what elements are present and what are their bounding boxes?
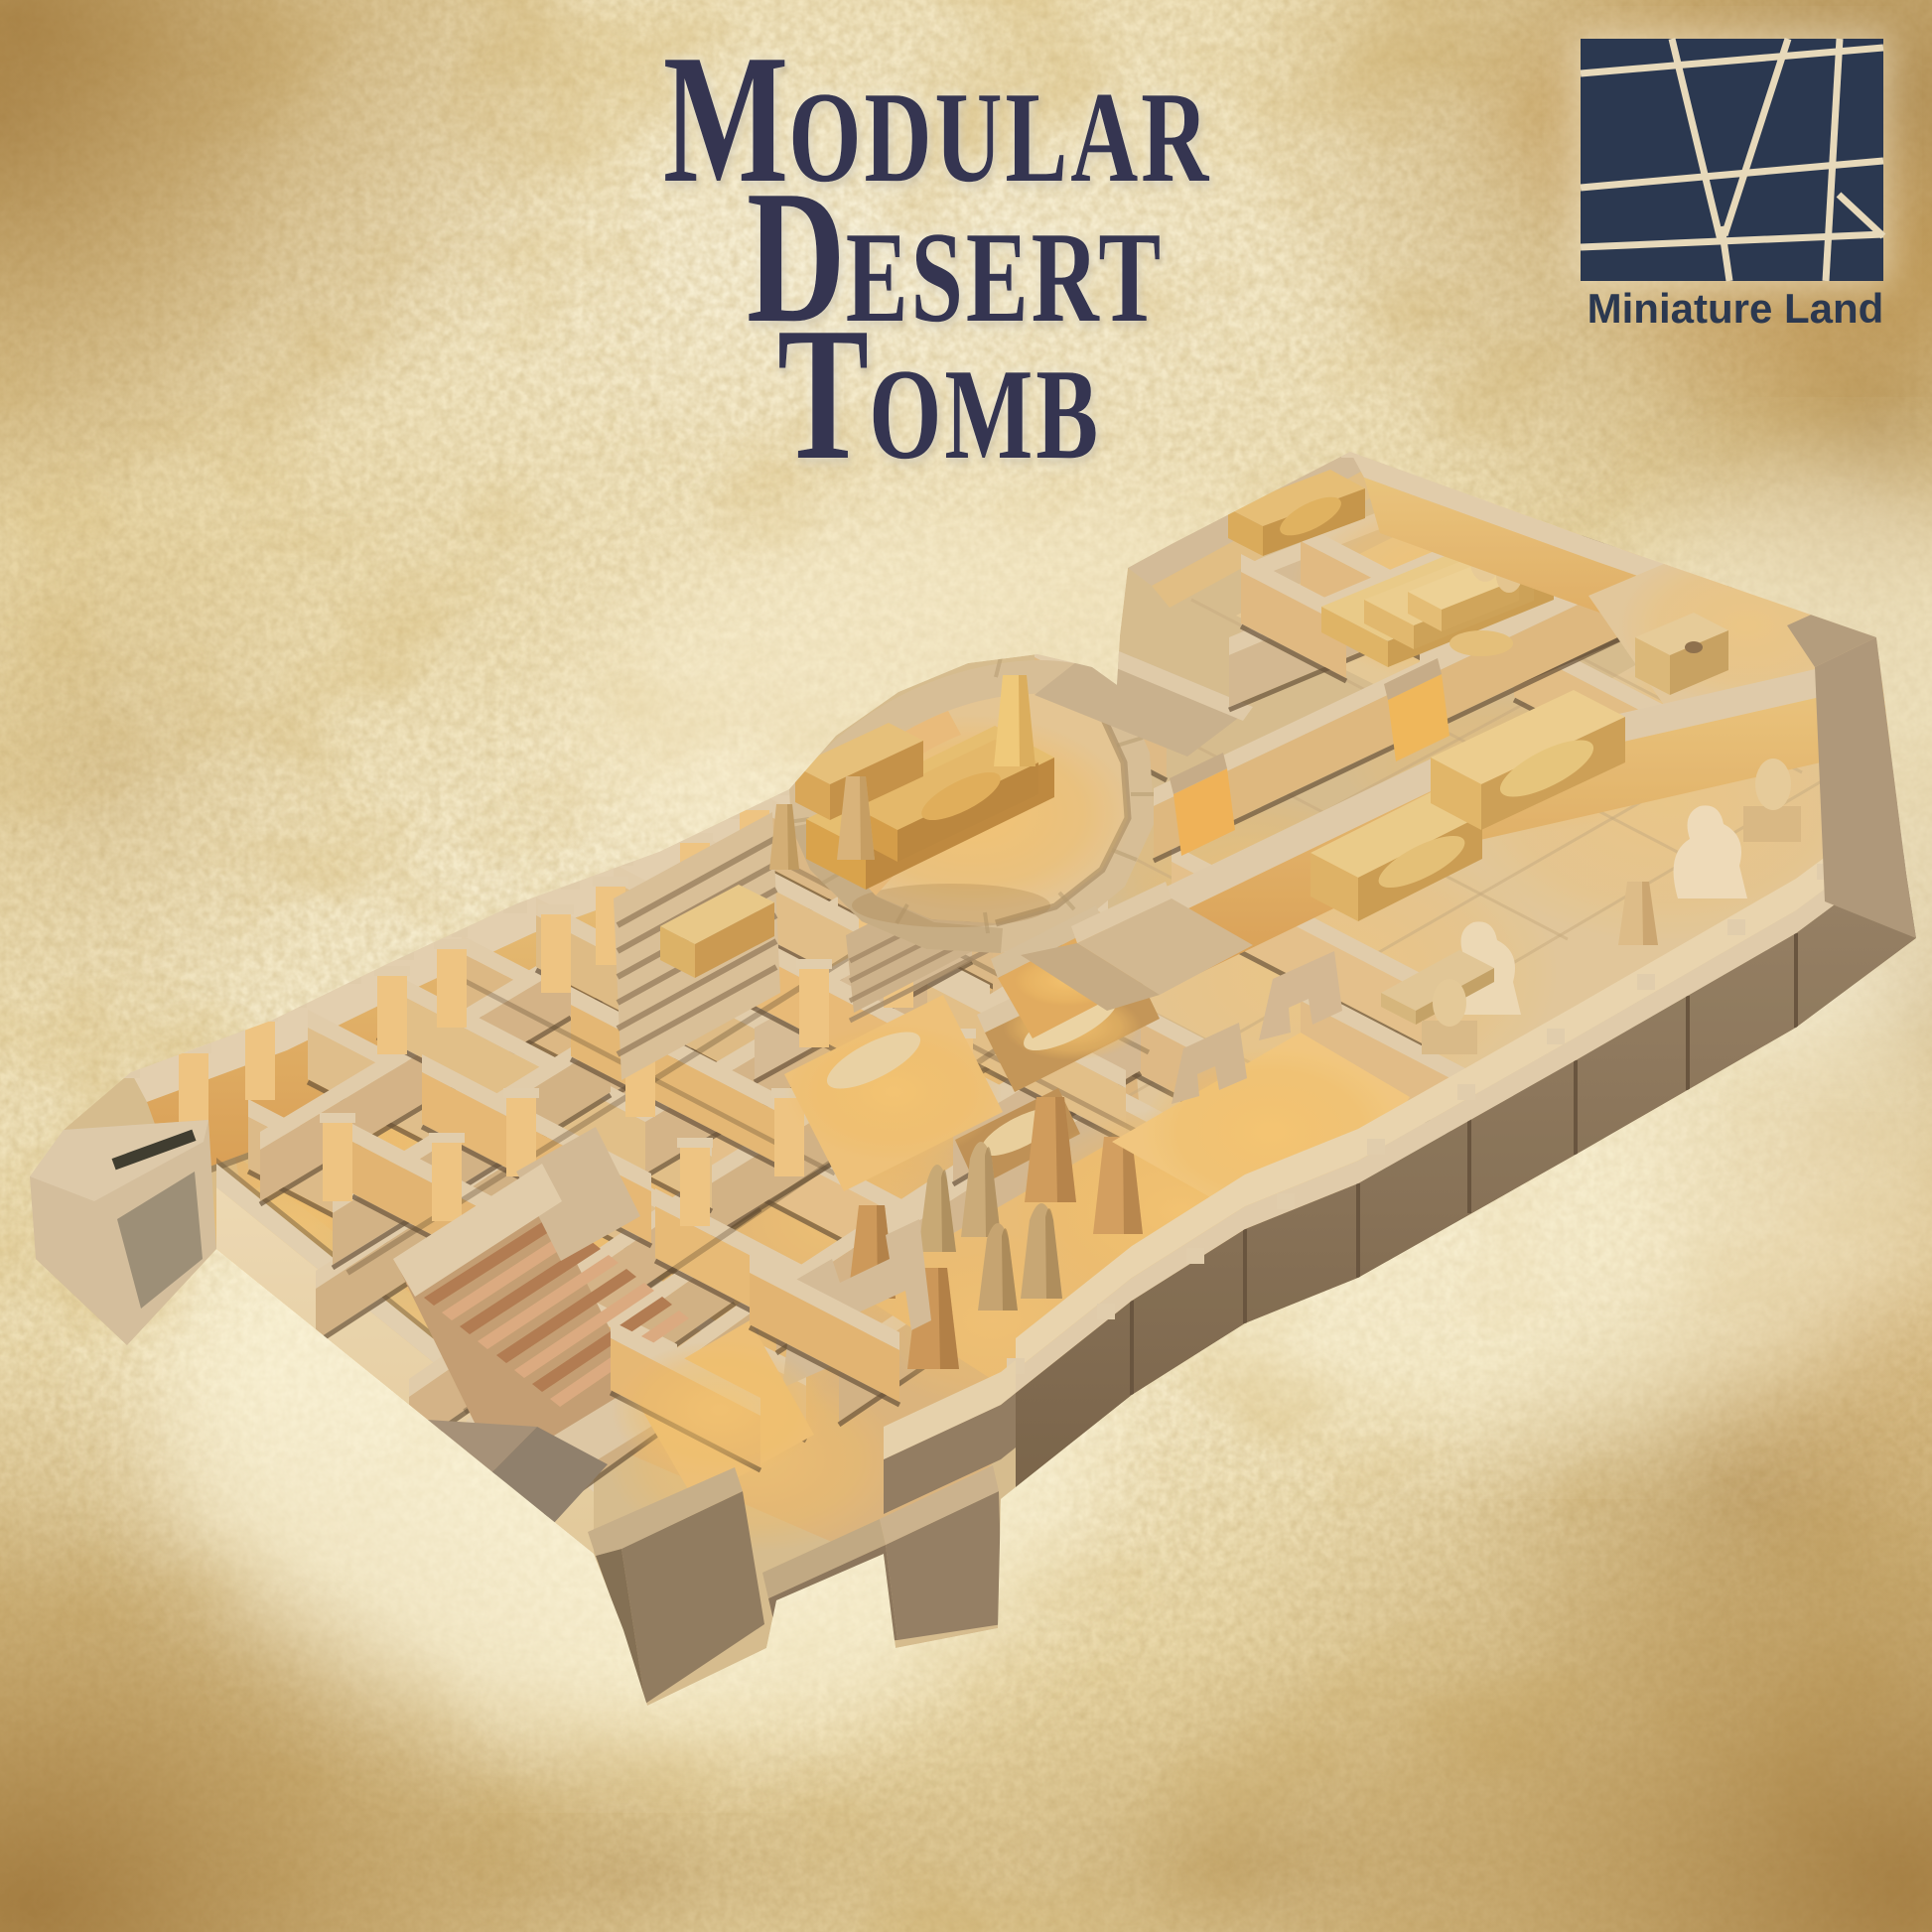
svg-text:Miniature Land: Miniature Land bbox=[1587, 285, 1884, 332]
